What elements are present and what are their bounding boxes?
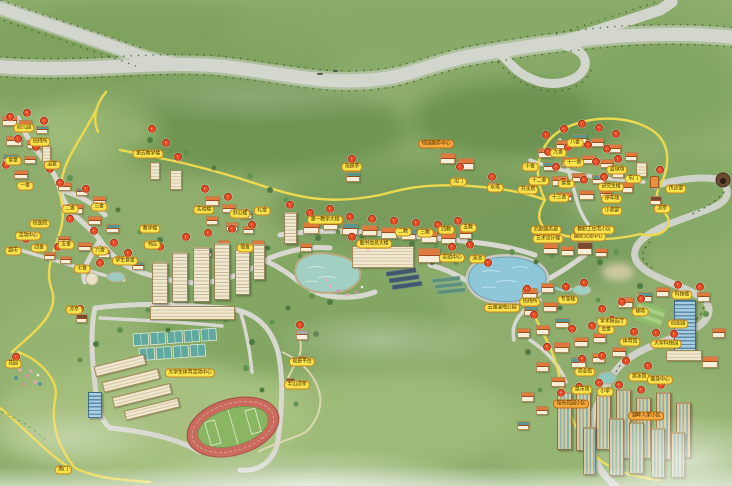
building (205, 196, 219, 206)
building (697, 292, 710, 302)
location-pin-icon[interactable] (96, 259, 104, 267)
map-label[interactable]: 水塔 (487, 184, 504, 193)
location-pin-icon[interactable] (674, 281, 682, 289)
location-pin-icon[interactable] (326, 205, 334, 213)
roof (25, 157, 36, 161)
building (593, 333, 606, 343)
map-label[interactable]: 菜市场 (571, 386, 592, 395)
map-label[interactable]: 九舍 (550, 149, 567, 158)
map-label[interactable]: 小学 (597, 388, 614, 397)
building (296, 330, 308, 340)
building (625, 152, 637, 161)
roof (613, 348, 626, 353)
location-pin-icon[interactable] (630, 328, 638, 336)
map-label[interactable]: 观景平台 (289, 358, 315, 367)
location-pin-icon[interactable] (580, 176, 588, 184)
location-pin-icon[interactable] (595, 379, 603, 387)
location-pin-icon[interactable] (162, 139, 170, 147)
building (551, 377, 565, 387)
building (253, 244, 265, 280)
location-pin-icon[interactable] (368, 215, 376, 223)
building (536, 325, 549, 335)
map-label[interactable]: 观景亭 (341, 163, 362, 172)
map-label[interactable]: 十三舍 (548, 194, 569, 203)
map-label[interactable]: 宿舍 (237, 244, 254, 253)
building (712, 328, 725, 338)
location-pin-icon[interactable] (248, 221, 256, 229)
map-label[interactable]: 食堂 (558, 180, 575, 189)
building (651, 428, 665, 478)
building (541, 283, 554, 293)
location-pin-icon[interactable] (595, 124, 603, 132)
location-pin-icon[interactable] (523, 285, 531, 293)
location-pin-icon[interactable] (346, 213, 354, 221)
plaza (86, 273, 98, 285)
roof (343, 224, 358, 230)
map-label[interactable]: 二教 (395, 228, 412, 237)
map-label[interactable]: 东门 (625, 175, 642, 184)
map-label[interactable]: 教学楼 (139, 225, 160, 234)
location-pin-icon[interactable] (696, 283, 704, 291)
location-pin-icon[interactable] (296, 321, 304, 329)
map-label[interactable]: 活动中心 (15, 232, 41, 241)
building (671, 432, 685, 478)
roof (555, 343, 569, 348)
building (152, 262, 168, 304)
location-pin-icon[interactable] (40, 117, 48, 125)
building (579, 190, 594, 200)
building (543, 302, 557, 312)
map-label[interactable]: 书店 (144, 241, 161, 250)
building (284, 212, 297, 244)
location-pin-icon[interactable] (466, 241, 474, 249)
map-label[interactable]: 球场 (632, 308, 649, 317)
location-pin-icon[interactable] (552, 163, 560, 171)
location-pin-icon[interactable] (110, 239, 118, 247)
building (300, 243, 312, 252)
location-pin-icon[interactable] (542, 131, 550, 139)
map-label[interactable]: 招待所 (519, 298, 540, 307)
map-label[interactable]: 停车场 (601, 195, 622, 204)
roof (297, 331, 308, 336)
building (521, 392, 534, 402)
building (517, 328, 530, 338)
map-label[interactable]: 礼堂 (254, 207, 271, 216)
map-label[interactable]: 传达室 (665, 185, 686, 194)
location-pin-icon[interactable] (568, 325, 576, 333)
building (612, 347, 626, 357)
building (666, 350, 702, 361)
location-pin-icon[interactable] (560, 125, 568, 133)
map-label[interactable]: 会堂 (598, 326, 615, 335)
location-pin-icon[interactable] (204, 229, 212, 237)
building (346, 172, 360, 182)
map-label[interactable]: 超市 (5, 247, 22, 256)
roof (441, 154, 455, 159)
map-label[interactable]: 招待所 (29, 138, 50, 147)
building (14, 170, 28, 179)
building (543, 243, 558, 254)
location-pin-icon[interactable] (201, 185, 209, 193)
roof (544, 244, 558, 249)
map-label[interactable]: 花园 (5, 360, 22, 369)
roof (45, 253, 55, 257)
map-label[interactable]: 教职工住宅小区 (574, 226, 615, 235)
location-pin-icon[interactable] (618, 298, 626, 306)
map-label[interactable]: 大学生体育活动中心 (165, 369, 215, 378)
location-pin-icon[interactable] (652, 329, 660, 337)
building (150, 306, 235, 320)
map-label[interactable]: 七舍 (74, 265, 91, 274)
map-label[interactable]: 图书信息大楼 (356, 240, 392, 249)
building (561, 246, 574, 256)
map-label[interactable]: 十二舍 (528, 177, 549, 186)
building (78, 242, 91, 251)
building (214, 243, 230, 300)
roof (562, 247, 574, 252)
location-pin-icon[interactable] (612, 130, 620, 138)
roof (580, 191, 594, 196)
roof (89, 217, 101, 221)
map-label[interactable]: 开水房 (517, 186, 538, 195)
location-pin-icon[interactable] (580, 279, 588, 287)
roof (537, 326, 549, 331)
location-pin-icon[interactable] (598, 352, 606, 360)
location-pin-icon[interactable] (224, 193, 232, 201)
building (591, 138, 604, 147)
building (595, 248, 607, 257)
building (352, 246, 414, 268)
building (440, 153, 455, 164)
roof (542, 284, 554, 289)
building (76, 314, 87, 323)
map-label[interactable]: 小卖部 (601, 207, 622, 216)
location-pin-icon[interactable] (562, 283, 570, 291)
map-label[interactable]: 四舍 (31, 244, 48, 253)
location-pin-icon[interactable] (592, 158, 600, 166)
location-pin-icon[interactable] (614, 155, 622, 163)
building (362, 225, 377, 236)
roof (703, 357, 718, 363)
roof (518, 329, 530, 334)
building (88, 216, 101, 225)
roof (79, 243, 91, 247)
map-label[interactable]: 三教 (417, 229, 434, 238)
roof (301, 244, 312, 248)
roof (518, 422, 529, 426)
roof (37, 127, 48, 131)
map-label[interactable]: 体育馆 (619, 338, 640, 347)
building (517, 421, 529, 430)
map-label[interactable]: 商业街 (574, 368, 595, 377)
map-label[interactable]: 五舍 (58, 241, 75, 250)
location-pin-icon[interactable] (644, 362, 652, 370)
location-pin-icon[interactable] (182, 233, 190, 241)
location-pin-icon[interactable] (670, 330, 678, 338)
map-label[interactable]: 八舍 (567, 139, 584, 148)
roof (713, 329, 725, 334)
map-label[interactable]: 三舍 (91, 203, 108, 212)
location-pin-icon[interactable] (615, 381, 623, 389)
roof (578, 243, 592, 249)
building (629, 422, 644, 474)
map-label[interactable]: 泳池 (469, 255, 486, 264)
location-pin-icon[interactable] (456, 163, 464, 171)
map-label[interactable]: 科技楼 (671, 291, 692, 300)
location-pin-icon[interactable] (488, 173, 496, 181)
map-label[interactable]: 半山凉亭 (284, 381, 310, 390)
location-pin-icon[interactable] (598, 305, 606, 313)
location-pin-icon[interactable] (578, 120, 586, 128)
location-pin-icon[interactable] (82, 185, 90, 193)
map-label[interactable]: 四教 (438, 226, 455, 235)
map-label[interactable]: 校医院 (29, 220, 50, 229)
map-label[interactable]: 专家楼 (557, 296, 578, 305)
location-pin-icon[interactable] (286, 201, 294, 209)
location-pin-icon[interactable] (228, 225, 236, 233)
location-pin-icon[interactable] (412, 219, 420, 227)
building (44, 252, 55, 260)
map-label[interactable]: 后勤服务部 (530, 226, 561, 235)
roof (94, 197, 106, 201)
roof (206, 197, 219, 202)
roof (77, 315, 87, 319)
roof (657, 288, 669, 293)
map-label[interactable]: 实验中心 (439, 254, 465, 263)
building (656, 287, 669, 297)
building (574, 337, 588, 347)
roof (552, 378, 565, 383)
roof (592, 139, 604, 143)
campus-map: 幼儿园招待所食堂浴室第五教学楼一舍二舍三舍校医院活动中心超市四舍五舍六舍七舍学生… (0, 0, 732, 486)
location-pin-icon[interactable] (637, 295, 645, 303)
map-label[interactable]: 十舍 (522, 163, 539, 172)
map-label[interactable]: 浴室 (44, 161, 61, 170)
building (172, 252, 188, 302)
roof (601, 160, 613, 164)
building (36, 126, 48, 134)
location-pin-icon[interactable] (600, 173, 608, 181)
map-label[interactable]: 研究生楼 (598, 183, 624, 192)
building (235, 249, 250, 295)
map-label[interactable]: 阳光花园小区 (553, 400, 589, 409)
roof (544, 303, 557, 308)
map-label[interactable]: 云湖湿地公园 (484, 304, 520, 313)
map-label[interactable]: 大学科技园 (650, 340, 681, 349)
location-pin-icon[interactable] (348, 233, 356, 241)
map-label[interactable]: 篮球场 (606, 166, 627, 175)
map-label[interactable]: 南门 (55, 466, 72, 475)
location-pin-icon[interactable] (148, 125, 156, 133)
map-label[interactable]: 健身中心 (647, 376, 673, 385)
roof (419, 249, 440, 256)
building (60, 256, 71, 264)
map-label[interactable]: 五教 (460, 224, 477, 233)
location-pin-icon[interactable] (543, 343, 551, 351)
roof (207, 217, 218, 221)
location-pin-icon[interactable] (14, 135, 22, 143)
building (536, 362, 549, 372)
roof (575, 338, 588, 343)
roof (537, 407, 548, 411)
roof (522, 393, 534, 398)
building (150, 162, 160, 180)
map-label[interactable]: 湖畔人家小区 (628, 412, 664, 421)
roof (596, 249, 607, 253)
building (583, 427, 596, 475)
building (106, 224, 119, 233)
building (554, 342, 569, 353)
map-label[interactable]: 六舍 (92, 247, 109, 256)
building (609, 418, 624, 476)
location-pin-icon[interactable] (584, 141, 592, 149)
map-label[interactable]: 校园服务中心 (418, 140, 454, 149)
location-pin-icon[interactable] (622, 357, 630, 365)
map-label[interactable]: 二舍 (62, 205, 79, 214)
building (650, 176, 659, 188)
map-label[interactable]: 十一舍 (563, 159, 584, 168)
location-pin-icon[interactable] (6, 113, 14, 121)
map-label[interactable]: 凉亭 (654, 205, 671, 214)
location-pin-icon[interactable] (23, 109, 31, 117)
building (418, 248, 440, 263)
map-label[interactable]: 一舍 (17, 182, 34, 191)
map-label[interactable]: 幼儿园 (13, 124, 34, 133)
location-pin-icon[interactable] (56, 179, 64, 187)
map-label[interactable]: 实验楼 (193, 206, 214, 215)
roof (15, 171, 28, 175)
location-pin-icon[interactable] (390, 217, 398, 225)
location-pin-icon[interactable] (448, 243, 456, 251)
roof (61, 257, 71, 261)
location-pin-icon[interactable] (557, 389, 565, 397)
map-label[interactable]: 第五教学楼 (132, 150, 163, 159)
roof (107, 225, 119, 229)
roof (626, 153, 637, 157)
location-pin-icon[interactable] (588, 322, 596, 330)
location-pin-icon[interactable] (637, 386, 645, 394)
roof (698, 293, 710, 298)
location-pin-icon[interactable] (174, 153, 182, 161)
roof (537, 363, 549, 368)
lake-1 (295, 253, 360, 292)
building (193, 247, 210, 302)
roof (651, 197, 661, 201)
building (88, 392, 102, 418)
location-pin-icon[interactable] (603, 145, 611, 153)
building (577, 242, 592, 255)
location-pin-icon[interactable] (656, 166, 664, 174)
building (24, 156, 36, 164)
roof (223, 205, 235, 209)
roof (556, 319, 569, 324)
building (170, 170, 182, 190)
location-pin-icon[interactable] (66, 215, 74, 223)
map-label[interactable]: 凉亭 (66, 306, 83, 315)
roof (347, 173, 360, 178)
map-label[interactable]: 艺术设计楼 (532, 235, 563, 244)
building (702, 356, 718, 368)
map-label[interactable]: 北门 (450, 178, 467, 187)
pond-left (107, 272, 125, 282)
location-pin-icon[interactable] (578, 355, 586, 363)
roof (363, 226, 377, 231)
map-label[interactable]: 食堂 (5, 157, 22, 166)
location-pin-icon[interactable] (90, 227, 98, 235)
map-label[interactable]: 办公楼 (229, 210, 250, 219)
location-pin-icon[interactable] (530, 311, 538, 319)
map-label[interactable]: 第一教学大楼 (307, 216, 343, 225)
map-label[interactable]: 学生食堂 (112, 257, 138, 266)
building (206, 216, 218, 225)
building (536, 406, 548, 415)
map-label[interactable]: 创业园 (667, 320, 688, 329)
building (555, 318, 569, 328)
